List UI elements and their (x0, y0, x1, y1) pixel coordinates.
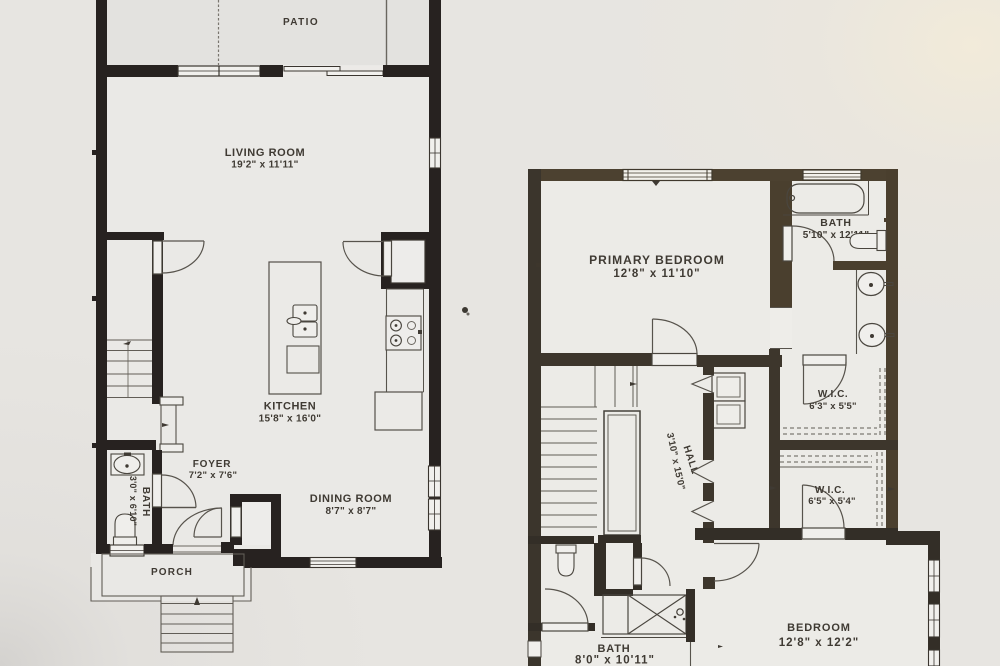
svg-text:PATIO: PATIO (283, 17, 319, 28)
svg-text:6'3" x 5'5": 6'3" x 5'5" (809, 401, 856, 412)
svg-text:LIVING ROOM: LIVING ROOM (225, 147, 306, 159)
svg-text:12'8" x 12'2": 12'8" x 12'2" (779, 637, 860, 649)
svg-text:KITCHEN: KITCHEN (264, 401, 316, 413)
svg-text:6'5" x 5'4": 6'5" x 5'4" (808, 496, 855, 507)
svg-text:12'8" x 11'10": 12'8" x 11'10" (613, 268, 700, 280)
svg-text:7'2" x 7'6": 7'2" x 7'6" (189, 470, 238, 481)
svg-text:BATH: BATH (820, 217, 852, 229)
svg-text:W.I.C.: W.I.C. (815, 485, 845, 496)
svg-text:PRIMARY BEDROOM: PRIMARY BEDROOM (589, 253, 725, 267)
svg-text:BATH: BATH (140, 487, 151, 517)
svg-text:8'0" x 10'11": 8'0" x 10'11" (575, 655, 655, 666)
svg-text:BATH: BATH (598, 643, 631, 655)
svg-text:BEDROOM: BEDROOM (787, 622, 851, 634)
svg-text:8'7" x 8'7": 8'7" x 8'7" (326, 506, 377, 517)
svg-text:DINING ROOM: DINING ROOM (310, 493, 392, 505)
svg-text:W.I.C.: W.I.C. (818, 389, 848, 400)
svg-text:PORCH: PORCH (151, 567, 193, 578)
svg-text:FOYER: FOYER (193, 459, 231, 470)
svg-text:15'8" x 16'0": 15'8" x 16'0" (259, 414, 322, 425)
svg-text:19'2" x 11'11": 19'2" x 11'11" (231, 160, 298, 171)
svg-text:3'0" x 6'10": 3'0" x 6'10" (128, 476, 138, 526)
